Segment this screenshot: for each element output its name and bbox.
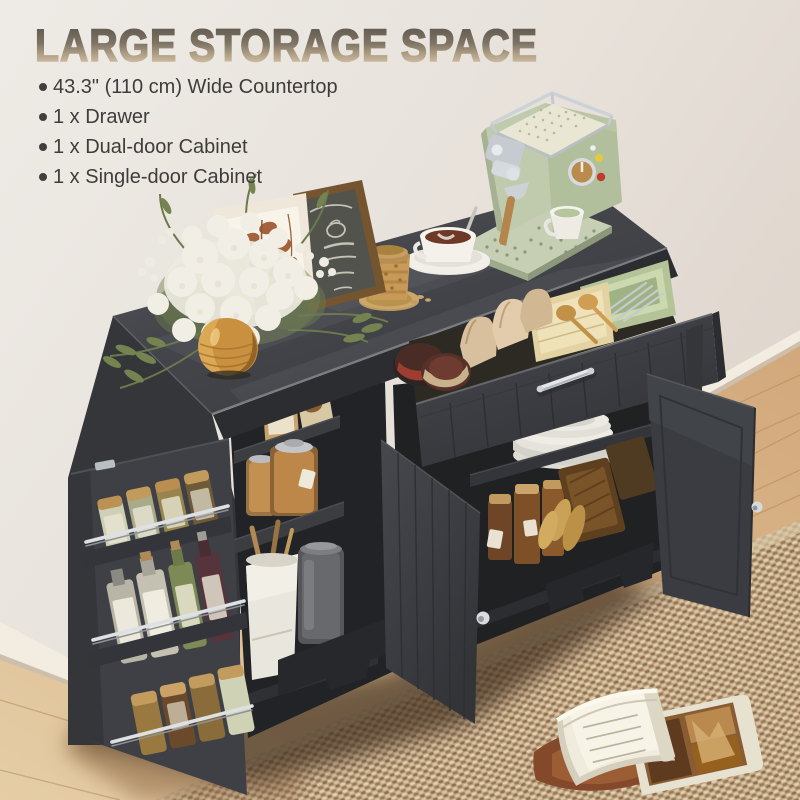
svg-text:LARGE STORAGE SPACE: LARGE STORAGE SPACE xyxy=(35,21,538,71)
